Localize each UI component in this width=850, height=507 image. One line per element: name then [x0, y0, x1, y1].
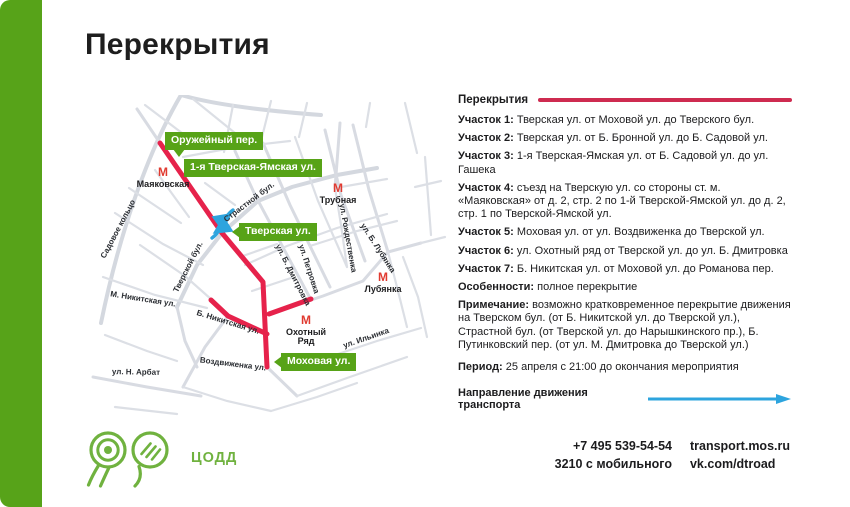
direction-arrow-icon	[646, 393, 792, 405]
metro-icon: М	[274, 314, 338, 327]
header-rule	[538, 98, 792, 102]
closure-label-text: Тверская ул.	[245, 225, 311, 237]
codd-logo: ЦОДД	[85, 428, 237, 488]
section-label: Участок 3:	[458, 150, 514, 162]
panel-header: Перекрытия	[458, 94, 792, 106]
section-label: Участок 5:	[458, 226, 514, 238]
metro-name: Охотный Ряд	[282, 328, 330, 347]
section-text: ул. Охотный ряд от Тверской ул. до ул. Б…	[517, 245, 788, 257]
street-label: ул. Н. Арбат	[112, 367, 160, 377]
section-text: Тверская ул. от Б. Бронной ул. до Б. Сад…	[517, 132, 768, 144]
features-text: полное перекрытие	[537, 281, 637, 293]
period-text: 25 апреля с 21:00 до окончания мероприят…	[506, 361, 739, 373]
closure-section-1: Участок 1: Тверская ул. от Моховой ул. д…	[458, 114, 792, 127]
closure-label-tverskaya: Тверская ул.	[239, 223, 317, 241]
panel-title: Перекрытия	[458, 94, 528, 106]
phone-main: +7 495 539-54-54	[555, 437, 672, 455]
codd-logo-icon	[85, 428, 177, 488]
closure-label-oruzheyny: Оружейный пер.	[165, 132, 263, 150]
closures-poster: Перекрытия	[0, 0, 850, 507]
closure-section-7: Участок 7: Б. Никитская ул. от Моховой у…	[458, 263, 792, 276]
links-block: transport.mos.ru vk.com/dtroad	[690, 437, 790, 473]
section-text: Моховая ул. от ул. Воздвиженка до Тверск…	[517, 226, 765, 238]
page-title: Перекрытия	[85, 28, 270, 62]
direction-row: Направление движения транспорта	[458, 387, 792, 411]
phone-mobile: 3210 с мобильного	[555, 455, 672, 473]
section-label: Участок 2:	[458, 132, 514, 144]
metro-lubyanka: М Лубянка	[351, 271, 415, 294]
closures-panel: Перекрытия Участок 1: Тверская ул. от Мо…	[458, 94, 792, 411]
contacts-block: +7 495 539-54-54 3210 с мобильного trans…	[555, 437, 790, 473]
city-map: Оружейный пер. 1-я Тверская-Ямская ул. Т…	[85, 95, 450, 420]
features-label: Особенности:	[458, 281, 534, 293]
accent-bar	[0, 0, 42, 507]
section-label: Участок 1:	[458, 114, 514, 126]
closure-label-text: Оружейный пер.	[171, 134, 257, 146]
section-text: Б. Никитская ул. от Моховой ул. до Роман…	[517, 263, 774, 275]
metro-trubnaya: М Трубная	[306, 182, 370, 205]
section-text: Тверская ул. от Моховой ул. до Тверского…	[517, 114, 754, 126]
metro-name: Трубная	[306, 196, 370, 205]
metro-name: Маяковская	[131, 180, 195, 189]
period-label: Период:	[458, 361, 503, 373]
closure-label-text: 1-я Тверская-Ямская ул.	[190, 161, 316, 173]
social-link[interactable]: vk.com/dtroad	[690, 455, 790, 473]
closure-section-3: Участок 3: 1-я Тверская-Ямская ул. от Б.…	[458, 150, 792, 176]
period-line: Период: 25 апреля с 21:00 до окончания м…	[458, 361, 792, 374]
closure-section-2: Участок 2: Тверская ул. от Б. Бронной ул…	[458, 132, 792, 145]
closure-label-mokhovaya: Моховая ул.	[281, 353, 356, 371]
closure-section-4: Участок 4: съезд на Тверскую ул. со стор…	[458, 182, 792, 222]
direction-label: Направление движения транспорта	[458, 387, 636, 411]
site-link[interactable]: transport.mos.ru	[690, 437, 790, 455]
note-line: Примечание: возможно кратковременное пер…	[458, 299, 792, 352]
closure-label-text: Моховая ул.	[287, 355, 350, 367]
closure-section-6: Участок 6: ул. Охотный ряд от Тверской у…	[458, 245, 792, 258]
metro-okhotny-ryad: М Охотный Ряд	[274, 314, 338, 346]
closure-label-tverskaya-yamskaya: 1-я Тверская-Ямская ул.	[184, 159, 322, 177]
logo-text: ЦОДД	[191, 450, 237, 466]
section-label: Участок 6:	[458, 245, 514, 257]
metro-icon: М	[306, 182, 370, 195]
metro-icon: М	[351, 271, 415, 284]
phones-block: +7 495 539-54-54 3210 с мобильного	[555, 437, 672, 473]
features-line: Особенности: полное перекрытие	[458, 281, 792, 294]
closure-section-5: Участок 5: Моховая ул. от ул. Воздвиженк…	[458, 226, 792, 239]
metro-name: Лубянка	[351, 285, 415, 294]
section-label: Участок 7:	[458, 263, 514, 275]
note-label: Примечание:	[458, 299, 529, 311]
section-label: Участок 4:	[458, 182, 514, 194]
secondary-streets	[93, 109, 421, 396]
